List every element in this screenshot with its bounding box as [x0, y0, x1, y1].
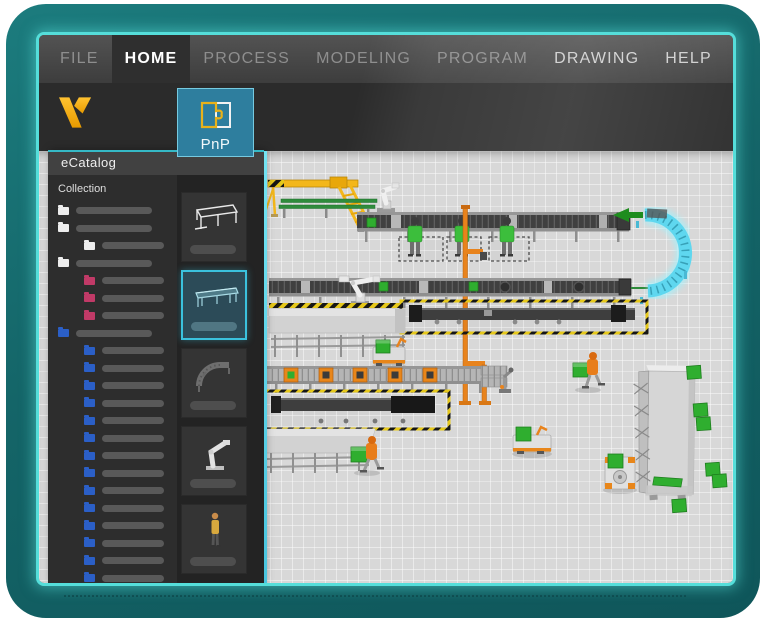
thumbnail-label-placeholder: [190, 401, 236, 410]
human-icon: [187, 508, 243, 552]
menu-item-file[interactable]: FILE: [47, 35, 112, 83]
thumbnail-label-placeholder: [190, 245, 236, 254]
pnp-ghost-curved-conveyor[interactable]: [636, 208, 687, 304]
item-label-placeholder: [102, 242, 164, 249]
folder-icon: [84, 469, 95, 477]
robot-icon: [187, 430, 243, 474]
tree-item-6[interactable]: [48, 290, 177, 308]
item-label-placeholder: [102, 417, 164, 424]
item-label-placeholder: [76, 207, 152, 214]
conveyor-icon: [188, 275, 244, 319]
folder-icon: [84, 417, 95, 425]
pnp-highlight-edge: [264, 151, 267, 583]
item-label-placeholder: [102, 557, 164, 564]
folder-icon: [84, 277, 95, 285]
tree-item-14[interactable]: [48, 430, 177, 448]
frame-dotted-line: [64, 595, 686, 597]
item-label-placeholder: [102, 382, 164, 389]
tree-item-19[interactable]: [48, 517, 177, 535]
folder-icon: [84, 294, 95, 302]
thumbnail-curved-conveyor[interactable]: [181, 348, 247, 418]
collection-tree: [48, 202, 177, 583]
agv-2[interactable]: [512, 427, 552, 458]
tree-item-21[interactable]: [48, 552, 177, 570]
thumbnail-list: [177, 175, 264, 583]
item-label-placeholder: [102, 540, 164, 547]
folder-icon: [84, 522, 95, 530]
tree-item-11[interactable]: [48, 377, 177, 395]
conveyor-line-pallets[interactable]: [265, 366, 507, 393]
conveyor-sketch-icon: [187, 196, 243, 240]
menu-item-help[interactable]: HELP: [652, 35, 725, 83]
tree-item-1[interactable]: [48, 202, 177, 220]
hazard-zone-rail-top[interactable]: [401, 301, 647, 333]
item-label-placeholder: [76, 225, 152, 232]
folder-icon: [84, 347, 95, 355]
folder-icon: [58, 224, 69, 232]
tree-item-9[interactable]: [48, 342, 177, 360]
thumbnail-conveyor[interactable]: [181, 270, 247, 340]
robot-arm-1[interactable]: [377, 183, 399, 213]
tree-item-3[interactable]: [48, 237, 177, 255]
thumbnail-label-placeholder: [190, 479, 236, 488]
visual-components-logo: [59, 97, 93, 133]
tree-item-5[interactable]: [48, 272, 177, 290]
thumbnail-robot[interactable]: [181, 426, 247, 496]
item-label-placeholder: [102, 312, 164, 319]
folder-icon: [84, 574, 95, 582]
folder-icon: [84, 539, 95, 547]
menu-item-process[interactable]: PROCESS: [190, 35, 303, 83]
pnp-button[interactable]: PnP: [177, 88, 254, 157]
folder-icon: [84, 504, 95, 512]
folder-icon: [58, 207, 69, 215]
collection-label: Collection: [58, 183, 177, 195]
thumbnail-label-placeholder: [190, 557, 236, 566]
tree-item-22[interactable]: [48, 570, 177, 584]
thumbnail-conveyor-sketch[interactable]: [181, 192, 247, 262]
page: { "window": { "frame_color": "#146568", …: [0, 0, 768, 623]
item-label-placeholder: [102, 470, 164, 477]
agv-3[interactable]: [603, 454, 637, 494]
item-label-placeholder: [102, 522, 164, 529]
folder-icon: [84, 382, 95, 390]
folder-icon: [84, 557, 95, 565]
menu-bar: FILEHOMEPROCESSMODELINGPROGRAMDRAWINGHEL…: [39, 35, 733, 83]
tree-item-13[interactable]: [48, 412, 177, 430]
worker-orange-2[interactable]: [573, 352, 605, 393]
tree-item-4[interactable]: [48, 255, 177, 273]
folder-icon: [84, 364, 95, 372]
folder-icon: [58, 259, 69, 267]
tree-item-8[interactable]: [48, 325, 177, 343]
item-label-placeholder: [102, 575, 164, 582]
thumbnail-human[interactable]: [181, 504, 247, 574]
tree-item-17[interactable]: [48, 482, 177, 500]
tree-item-20[interactable]: [48, 535, 177, 553]
storage-rack[interactable]: [628, 360, 728, 515]
item-label-placeholder: [102, 505, 164, 512]
hazard-zone-rail-bottom[interactable]: [265, 391, 449, 429]
menu-item-drawing[interactable]: DRAWING: [541, 35, 652, 83]
tree-item-18[interactable]: [48, 500, 177, 518]
item-label-placeholder: [102, 487, 164, 494]
item-label-placeholder: [102, 400, 164, 407]
folder-icon: [84, 312, 95, 320]
folder-icon: [84, 452, 95, 460]
item-label-placeholder: [76, 330, 152, 337]
tree-item-16[interactable]: [48, 465, 177, 483]
item-label-placeholder: [102, 347, 164, 354]
folder-icon: [84, 242, 95, 250]
puzzle-piece-icon: [196, 95, 236, 135]
folder-icon: [84, 434, 95, 442]
tree-item-7[interactable]: [48, 307, 177, 325]
item-label-placeholder: [102, 452, 164, 459]
menu-item-modeling[interactable]: MODELING: [303, 35, 424, 83]
app-window: FILEHOMEPROCESSMODELINGPROGRAMDRAWINGHEL…: [36, 32, 736, 586]
folder-icon: [84, 399, 95, 407]
item-label-placeholder: [76, 260, 152, 267]
thumbnail-label-placeholder: [191, 322, 237, 331]
tree-item-15[interactable]: [48, 447, 177, 465]
item-label-placeholder: [102, 277, 164, 284]
item-label-placeholder: [102, 295, 164, 302]
device-frame: FILEHOMEPROCESSMODELINGPROGRAMDRAWINGHEL…: [6, 4, 760, 618]
ecatalog-tree-panel: Collection: [48, 175, 177, 583]
ecatalog-panel: eCatalog Collection: [48, 150, 264, 583]
menu-item-home[interactable]: HOME: [112, 35, 191, 83]
item-label-placeholder: [102, 365, 164, 372]
pnp-button-label: PnP: [201, 136, 231, 153]
item-label-placeholder: [102, 435, 164, 442]
menu-item-program[interactable]: PROGRAM: [424, 35, 541, 83]
folder-icon: [84, 487, 95, 495]
curved-conveyor-icon: [187, 352, 243, 396]
tree-item-2[interactable]: [48, 220, 177, 238]
folder-icon: [58, 329, 69, 337]
ribbon: [39, 83, 733, 151]
tree-item-12[interactable]: [48, 395, 177, 413]
tree-item-10[interactable]: [48, 360, 177, 378]
